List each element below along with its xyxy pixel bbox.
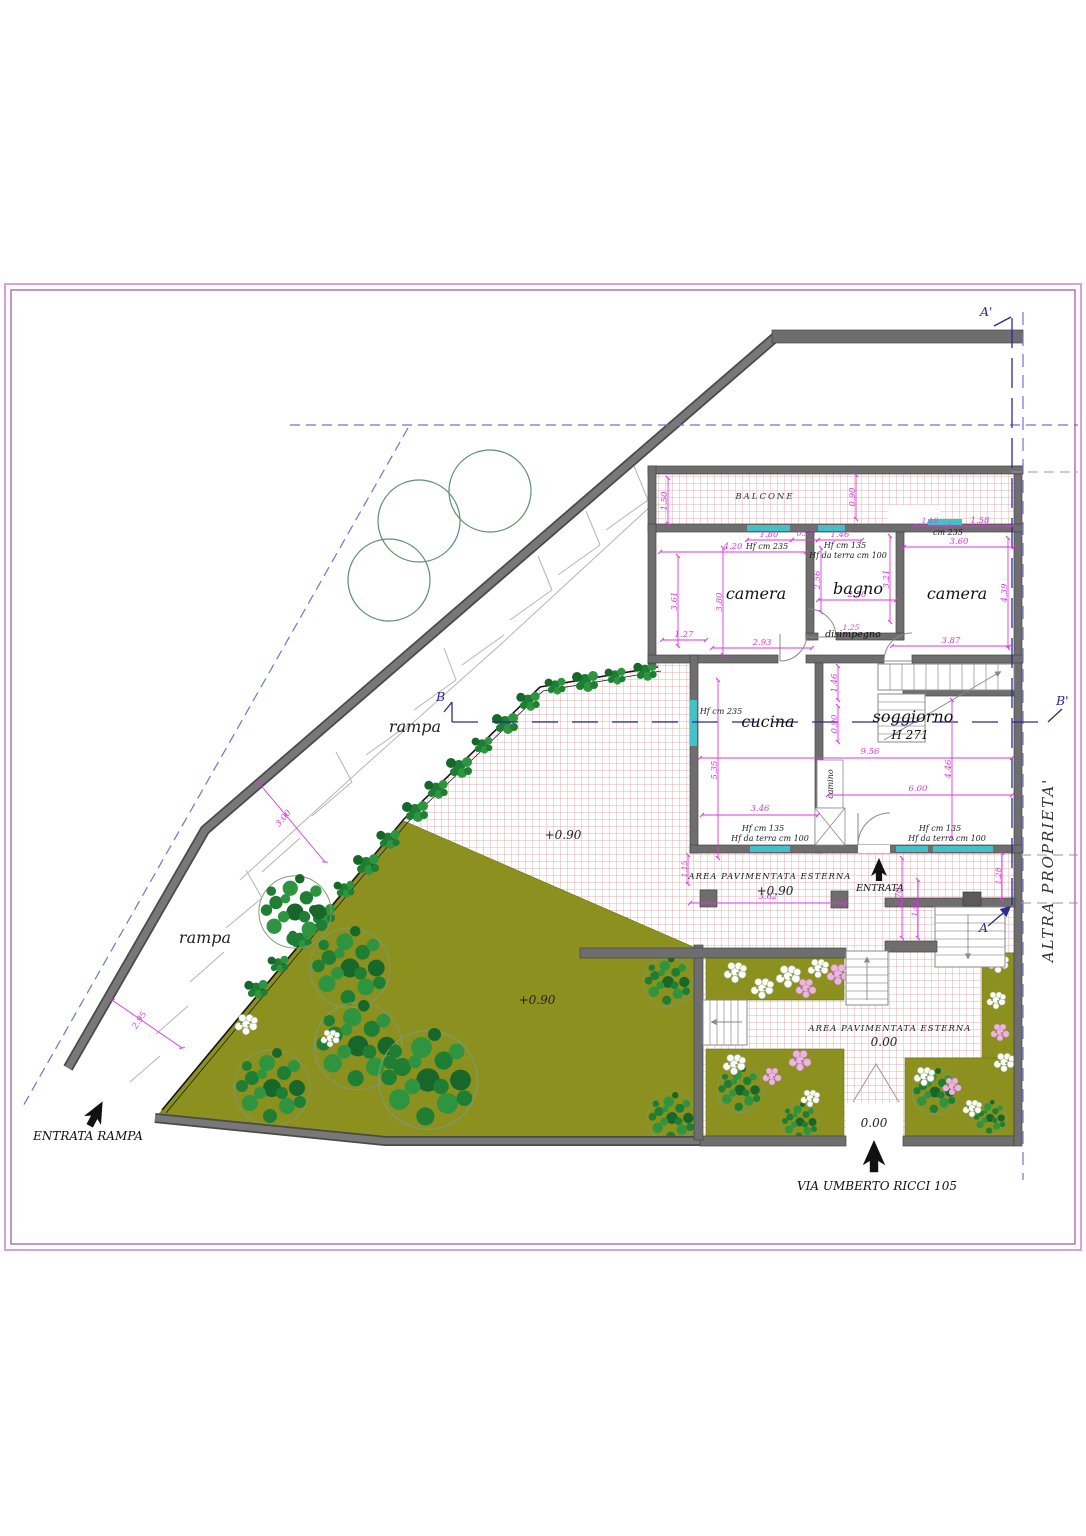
- window-height-note: Hf da terra cm 100: [730, 834, 809, 843]
- level-label: 0.00: [871, 1035, 898, 1049]
- section-marker-a: A: [978, 920, 988, 935]
- dim-label: 1.27: [675, 630, 695, 640]
- dim-label: 4.39: [1000, 583, 1010, 604]
- tree-outline: [378, 480, 460, 562]
- dim-label: 1.10: [922, 516, 939, 525]
- street-label: VIA UMBERTO RICCI 105: [797, 1179, 957, 1193]
- window-height-note: Hf cm 135: [823, 541, 866, 550]
- dim-label: 2.93: [752, 638, 772, 648]
- room-label-disimpegno: disimpegno: [825, 629, 881, 640]
- garden-side-wall: [694, 945, 703, 1140]
- dim-label: 3.87: [942, 636, 962, 646]
- room-label-camera-left: camera: [726, 584, 786, 603]
- dim-label: 1.28: [994, 867, 1003, 884]
- tree-outline: [348, 539, 430, 621]
- dim-label: 3.80: [715, 592, 725, 612]
- room-label-soggiorno: soggiorno: [873, 707, 954, 726]
- post: [700, 890, 717, 907]
- dim-label: 1.46: [831, 530, 851, 540]
- area-label: AREA PAVIMENTATA ESTERNA: [688, 872, 852, 882]
- dim-label: 3.00: [274, 808, 294, 829]
- dim-label: 3.61: [670, 592, 680, 611]
- stair-up-terrace: [846, 951, 888, 1005]
- dim-label: 1.42: [910, 899, 919, 916]
- dim-label: 0.90: [830, 714, 840, 734]
- post: [831, 891, 848, 908]
- neighbour-property-label: ALTRA PROPRIETA': [1039, 778, 1057, 965]
- section-marker-b1: B': [1055, 693, 1069, 708]
- section-marker-b: B: [435, 689, 445, 704]
- entrance-label: ENTRATA: [855, 883, 904, 894]
- window-height-note: Hf cm 135: [741, 824, 784, 833]
- window-height-note: Hf da terra cm 100: [907, 834, 986, 843]
- terrace-retaining-wall: [580, 948, 846, 958]
- window-height-note: cm 235: [933, 528, 963, 537]
- ramp-entrance-label: ENTRATA RAMPA: [32, 1129, 143, 1143]
- level-label: 0.00: [861, 1116, 888, 1130]
- window-height-note: Hf cm 135: [918, 824, 961, 833]
- window-height-note: Hf cm 235: [745, 542, 788, 551]
- dim-label: 2.95: [130, 1010, 149, 1032]
- dim-label: 0.90: [848, 487, 858, 507]
- dim-label: 3.46: [751, 804, 771, 814]
- section-marker-a1: A': [979, 304, 992, 319]
- floor-plan-canvas: camino A' A B B': [0, 0, 1086, 1536]
- dim-label: 1.46: [830, 673, 840, 693]
- dim-label: 5.35: [710, 761, 720, 780]
- dim-label: 1.50: [660, 491, 670, 511]
- fireplace-label: camino: [826, 769, 835, 799]
- room-height-soggiorno: H 271: [890, 728, 928, 742]
- dim-label: 6.00: [909, 784, 929, 794]
- level-label: +0.90: [545, 828, 582, 842]
- via-arrow-icon: [863, 1140, 885, 1172]
- fireplace: camino: [815, 760, 845, 845]
- ramp-label-upper: rampa: [389, 717, 441, 736]
- room-label-camera-right: camera: [927, 584, 987, 603]
- level-label: +0.90: [757, 884, 794, 898]
- area-label: AREA PAVIMENTATA ESTERNA: [808, 1024, 972, 1034]
- ramp-label-lower: rampa: [179, 928, 231, 947]
- dim-label: 9.56: [861, 747, 881, 757]
- dim-label: 4.20: [723, 542, 744, 552]
- window: [690, 700, 697, 746]
- balcony-paved-area: [655, 473, 1021, 526]
- dim-label: 1.80: [760, 530, 780, 540]
- window-height-note: Hf da terra cm 100: [808, 551, 887, 560]
- door: [858, 813, 890, 845]
- flower-bed: [706, 1049, 844, 1136]
- drawing-sheet: camino A' A B B': [0, 0, 1086, 1536]
- dim-label: 1.58: [971, 516, 991, 526]
- window: [750, 846, 790, 852]
- right-site-wall: [1014, 466, 1022, 1146]
- dim-label: 3.21: [882, 570, 892, 589]
- dim-label: 0.57: [797, 529, 814, 538]
- room-label-bagno: bagno: [833, 579, 883, 598]
- window: [933, 846, 993, 852]
- top-boundary-wall: [772, 330, 1023, 343]
- dim-label: 3.60: [950, 537, 970, 547]
- tree-outline: [449, 450, 531, 532]
- dim-label: 4.46: [944, 759, 954, 780]
- dim-label: 2.56: [813, 570, 823, 591]
- window-height-note: Hf cm 235: [699, 707, 742, 716]
- room-label-balcone: BALCONE: [734, 492, 794, 502]
- stair-garden: [703, 1000, 747, 1045]
- window: [896, 846, 928, 852]
- entrata-rampa-arrow-icon: [81, 1097, 111, 1130]
- room-label-cucina: cucina: [741, 712, 794, 731]
- level-label: +0.90: [519, 993, 556, 1007]
- door: [780, 634, 807, 661]
